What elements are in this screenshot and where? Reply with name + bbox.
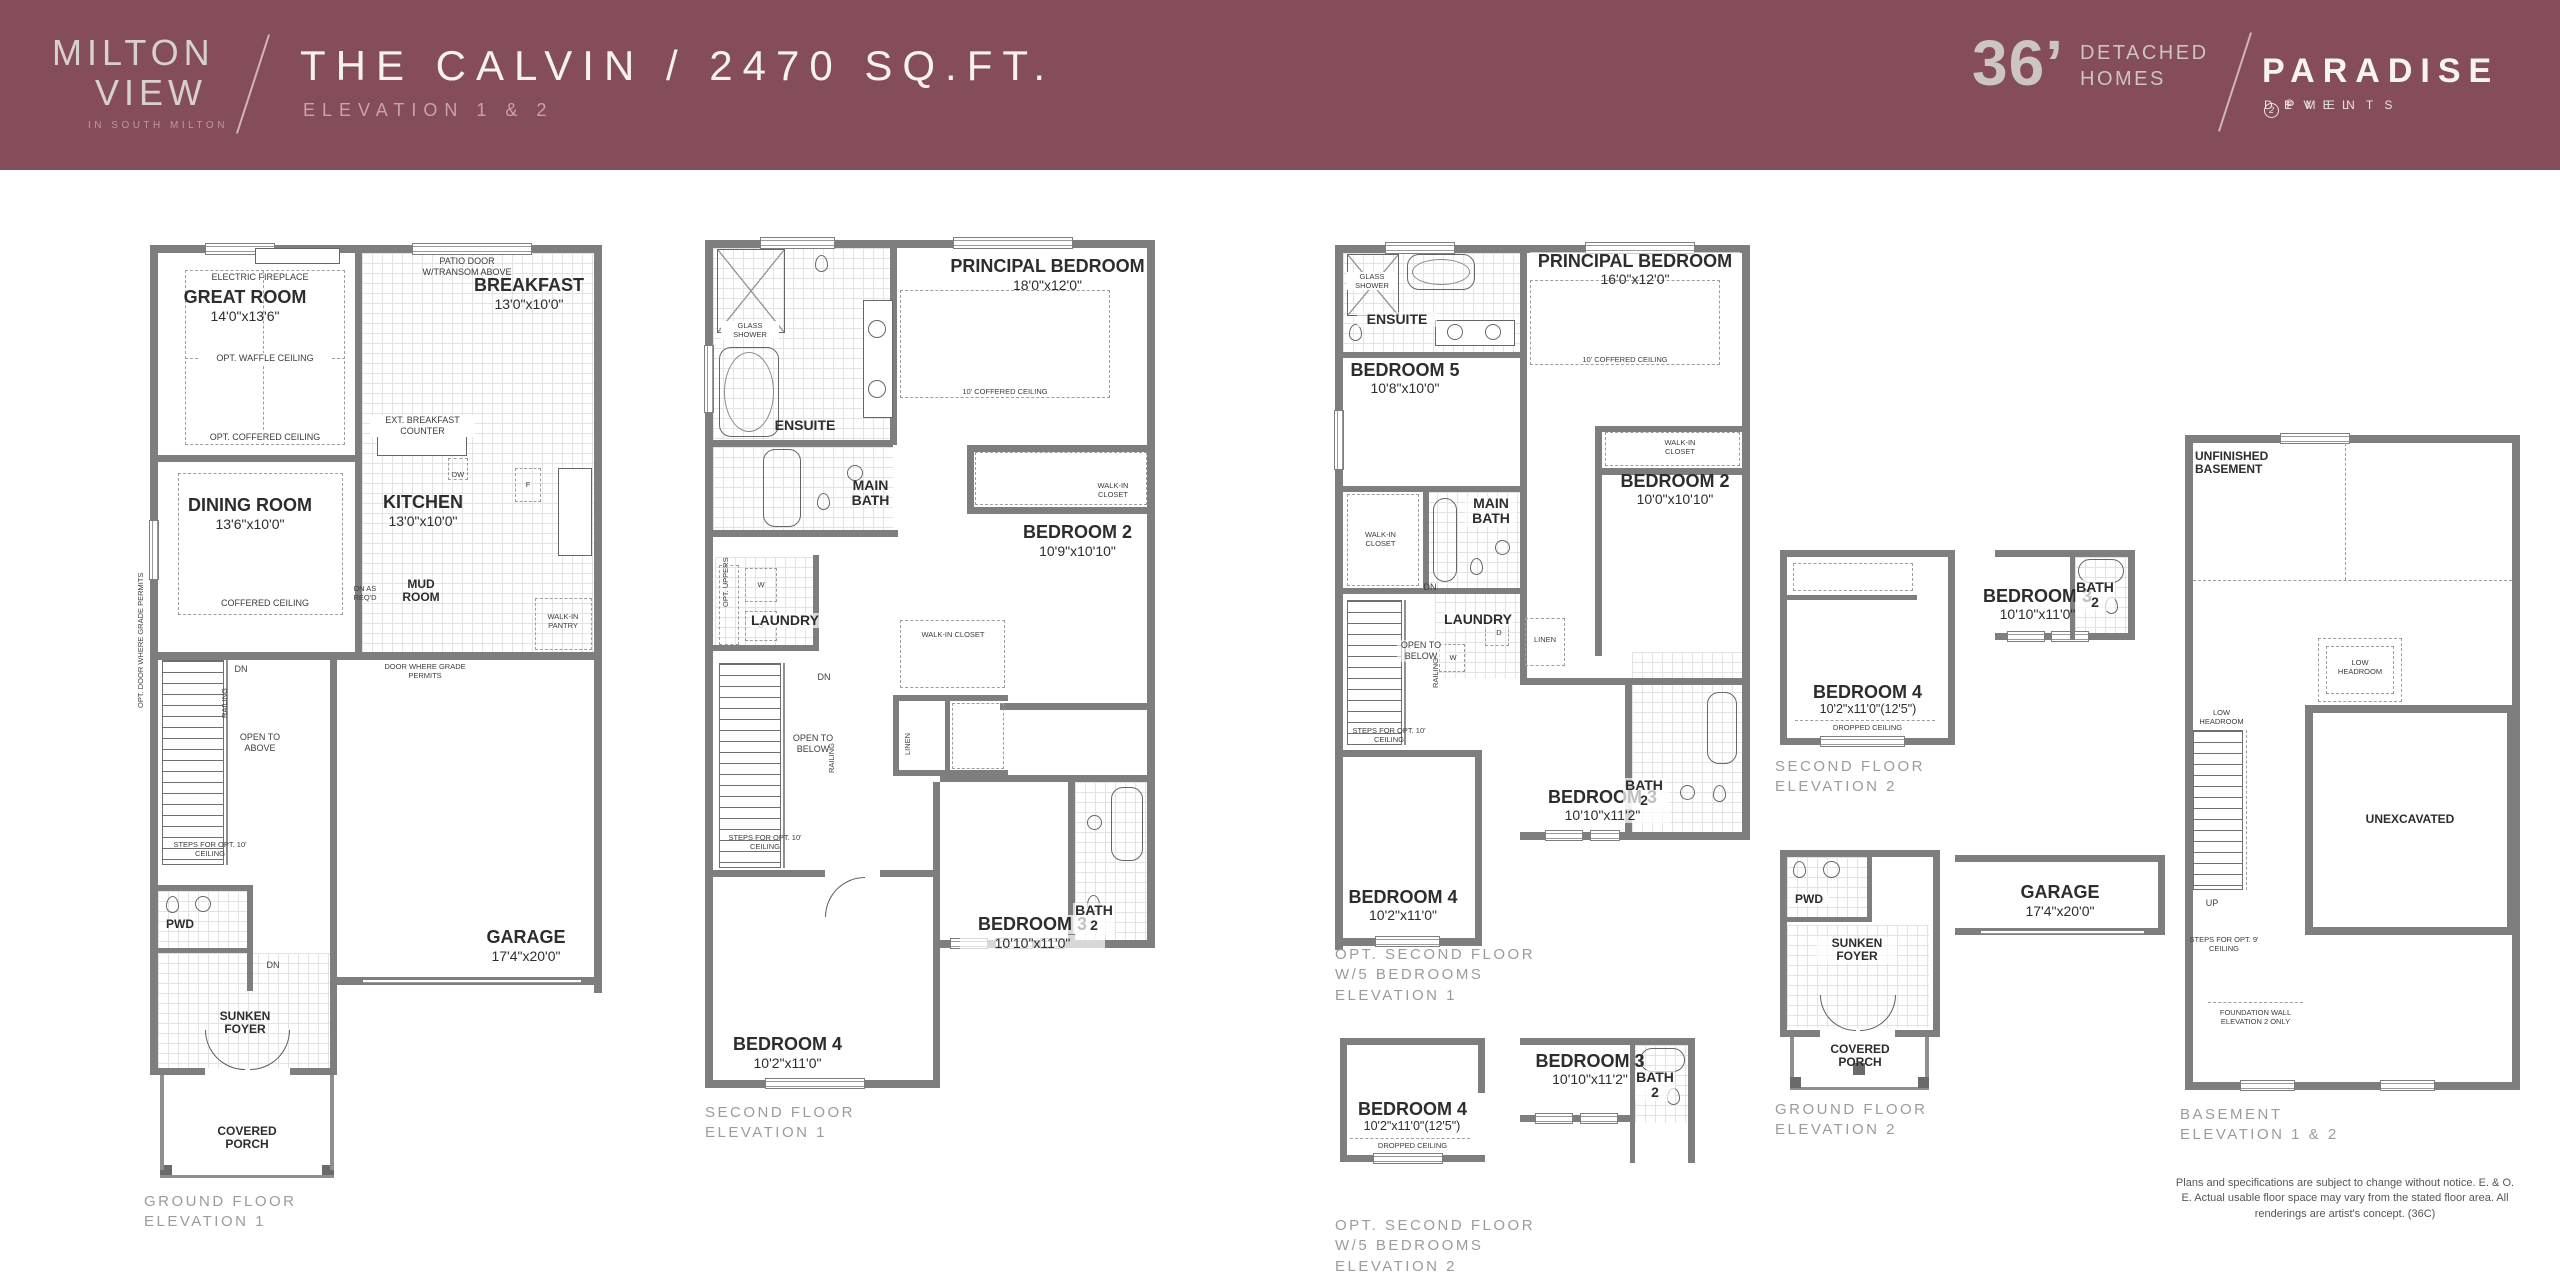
window-icon [2280, 433, 2350, 444]
room-label: BEDROOM 2 [1605, 472, 1745, 491]
note: OPT. UPPERS [721, 557, 730, 607]
stair-railing [1404, 600, 1406, 745]
front-door-opening [205, 1068, 290, 1075]
plan-caption: BASEMENT ELEVATION 1 & 2 [2180, 1105, 2339, 1146]
room-dims: 10'10"x11'2" [1535, 807, 1670, 823]
room-label: MUD ROOM [398, 578, 444, 605]
floor-plan-ground-floor-elevation-1: ELECTRIC FIREPLACE GREAT ROOM 14'0"x13'6… [150, 240, 615, 1250]
interior-wall [1478, 1038, 1485, 1093]
room-label: BATH 2 [1635, 1070, 1675, 1101]
caption-line: W/5 BEDROOMS [1335, 966, 1483, 983]
note: WALK-IN CLOSET [1087, 481, 1139, 499]
pwd-wall [1787, 917, 1872, 922]
porch-post [1790, 1077, 1801, 1088]
note: LOW HEADROOM [2194, 708, 2249, 726]
exterior-wall [2185, 435, 2193, 1090]
note: DN [1419, 582, 1441, 593]
beam-dash-line [2345, 443, 2346, 580]
builder-logo-2-icon: 2 [2264, 103, 2279, 118]
room-dims: 13'6"x10'0" [175, 516, 325, 532]
dropped-ceiling-line [1350, 1138, 1470, 1139]
sink-icon [868, 320, 886, 338]
window-icon [2380, 1080, 2435, 1091]
note: OPEN TO ABOVE [236, 732, 284, 754]
disclaimer-text: Plans and specifications are subject to … [2172, 1176, 2518, 1222]
room-dims: 10'10"x11'2" [1530, 1071, 1650, 1087]
window-icon [1334, 410, 1344, 470]
exterior-wall [1933, 850, 1940, 1037]
window-icon [760, 237, 835, 249]
plan-caption: SECOND FLOOR ELEVATION 1 [705, 1103, 855, 1144]
pwd-wall [158, 885, 253, 891]
window-icon [765, 1078, 865, 1089]
room-dims: 10'10"x11'0" [960, 935, 1105, 951]
room-label: COVERED PORCH [1815, 1043, 1905, 1070]
exterior-wall [2128, 550, 2135, 640]
plan-caption: OPT. SECOND FLOOR W/5 BEDROOMS ELEVATION… [1335, 1216, 1535, 1277]
closet-box [1793, 563, 1913, 591]
room-dims: 10'2"x11'0" [1343, 907, 1463, 923]
toilet-icon [1470, 558, 1483, 575]
tub-basin [1412, 259, 1470, 285]
plan-caption: GROUND FLOOR ELEVATION 1 [144, 1192, 297, 1233]
room-label: BREAKFAST [470, 276, 588, 295]
divider-slash-icon [236, 34, 270, 134]
note: STEPS FOR OPT. 9' CEILING [2188, 935, 2260, 953]
note: WALK-IN CLOSET [1353, 530, 1408, 548]
room-dims: 10'2"x11'0"(12'5") [1783, 702, 1953, 716]
bathtub-icon [763, 449, 801, 527]
stairs [2193, 730, 2243, 890]
note: DROPPED CEILING [1365, 1141, 1460, 1150]
window-icon [2007, 631, 2045, 642]
note: RAILING [220, 688, 229, 718]
divider-slash-icon [2218, 32, 2252, 132]
window-icon [1385, 242, 1455, 254]
room-dims: 16'0"x12'0" [1530, 271, 1740, 287]
note: F [518, 480, 538, 489]
note: FOUNDATION WALL ELEVATION 2 ONLY [2208, 1008, 2303, 1026]
room-label: SUNKEN FOYER [1817, 937, 1897, 964]
note: DN [262, 960, 284, 971]
bathtub-icon [1433, 498, 1457, 582]
home-type-line2: HOMES [2080, 68, 2166, 91]
community-logo-tagline: IN SOUTH MILTON [88, 120, 228, 131]
note: GLASS SHOWER [1347, 272, 1397, 290]
room-label: LAUNDRY [750, 613, 820, 628]
porch-wall [160, 1075, 164, 1170]
porch-post [1918, 1077, 1929, 1088]
note: DN AS REQ'D [348, 584, 382, 602]
window-icon [1590, 830, 1620, 841]
sink-icon [1087, 815, 1102, 830]
interior-wall [713, 530, 898, 537]
plan-subtitle: ELEVATION 1 & 2 [303, 100, 553, 121]
room-label: PRINCIPAL BEDROOM [945, 257, 1150, 276]
interior-wall [1520, 678, 1745, 685]
builder-dev-right: P M E N T S [2286, 98, 2396, 112]
note: ELECTRIC FIREPLACE [195, 272, 325, 283]
floor-plan-opt-second-floor-5br-elevation-2: BEDROOM 4 10'2"x11'0"(12'5") DROPPED CEI… [1335, 1030, 1700, 1280]
caption-line: W/5 BEDROOMS [1335, 1237, 1483, 1254]
note: DROPPED CEILING [1820, 723, 1915, 732]
builder-logo: PARADISE [2262, 52, 2499, 91]
note: WALK-IN CLOSET [908, 630, 998, 639]
interior-wall [1343, 486, 1523, 492]
interior-wall [1475, 750, 1482, 945]
caption-line: OPT. SECOND FLOOR [1335, 1217, 1535, 1234]
interior-wall [1520, 253, 1527, 358]
interior-wall [933, 782, 940, 1088]
room-label: UNFINISHED BASEMENT [2195, 450, 2290, 477]
room-label: COVERED PORCH [202, 1125, 292, 1152]
porch-edge [1790, 1087, 1929, 1090]
kitchen-counter [558, 468, 592, 556]
note: EXT. BREAKFAST COUNTER [370, 415, 475, 437]
note: W [755, 580, 767, 589]
porch-edge [160, 1175, 334, 1178]
room-label: BATH 2 [2075, 580, 2115, 611]
bathtub-icon [1707, 692, 1737, 764]
exterior-wall [1780, 850, 1940, 857]
toilet-icon [815, 255, 828, 272]
caption-line: SECOND FLOOR [1775, 758, 1925, 775]
closet-wall [1787, 595, 1917, 600]
room-dims: 17'4"x20'0" [462, 948, 590, 964]
caption-line: ELEVATION 1 [705, 1124, 827, 1141]
plan-caption: SECOND FLOOR ELEVATION 2 [1775, 757, 1925, 798]
interior-wall [158, 652, 602, 660]
interior-wall [940, 775, 1155, 782]
interior-wall [158, 455, 362, 462]
window-icon [2240, 1080, 2295, 1091]
porch-wall [330, 1075, 334, 1170]
fireplace-icon [255, 248, 340, 264]
note: DN [813, 672, 835, 683]
caption-line: ELEVATION 1 & 2 [2180, 1126, 2339, 1143]
note: RAILING [1431, 658, 1440, 688]
room-label: PRINCIPAL BEDROOM [1530, 252, 1740, 271]
note: LINEN [1528, 635, 1562, 644]
garage-door-icon [362, 979, 582, 984]
window-icon [149, 520, 159, 580]
interior-wall [1000, 703, 1155, 710]
stairs [1347, 600, 1402, 745]
bathtub-icon [1407, 254, 1475, 290]
note: D [1493, 628, 1505, 637]
room-dims: 13'0"x10'0" [364, 513, 482, 529]
unexcavated-area: UNEXCAVATED [2305, 705, 2515, 935]
note: STEPS FOR OPT. 10' CEILING [719, 833, 811, 851]
interior-wall [893, 695, 899, 776]
bathtub-icon [1111, 787, 1143, 861]
note: GLASS SHOWER [721, 321, 779, 339]
sink-icon [195, 896, 211, 912]
caption-line: GROUND FLOOR [1775, 1101, 1928, 1118]
note: WALK-IN PANTRY [540, 612, 586, 630]
exterior-wall [1780, 850, 1787, 1037]
room-dims: 18'0"x12'0" [945, 277, 1150, 293]
room-dims: 10'2"x11'0" [720, 1055, 855, 1071]
sink-icon [868, 380, 886, 398]
note: UP [2200, 898, 2224, 909]
room-dims: 10'9"x10'10" [1005, 543, 1150, 559]
caption-line: BASEMENT [2180, 1106, 2283, 1123]
caption-line: OPT. SECOND FLOOR [1335, 946, 1535, 963]
header-band: MILTON VIEW IN SOUTH MILTON THE CALVIN /… [0, 0, 2560, 170]
door-arc-icon [825, 877, 865, 917]
room-label: BEDROOM 3 [1530, 1052, 1650, 1071]
room-label: BEDROOM 5 [1345, 361, 1465, 380]
room-label: GREAT ROOM [170, 288, 320, 307]
door-opening [825, 870, 880, 877]
foundation-dash-line [2208, 1002, 2303, 1003]
interior-wall [945, 695, 950, 776]
note: COFFERED CEILING [205, 598, 325, 609]
brochure-page: MILTON VIEW IN SOUTH MILTON THE CALVIN /… [0, 0, 2560, 1280]
pwd-wall [1867, 857, 1872, 919]
room-label: BEDROOM 4 [1345, 1100, 1480, 1119]
room-dims: 10'0"x10'10" [1605, 491, 1745, 507]
exterior-wall [1995, 550, 2135, 557]
caption-line: SECOND FLOOR [705, 1104, 855, 1121]
floor-plan-second-floor-elevation-1: GLASS SHOWER ENSUITE PRINCIPAL BEDROOM 1… [705, 235, 1165, 1155]
caption-line: ELEVATION 1 [1335, 987, 1457, 1004]
sink-icon [1680, 785, 1695, 800]
floor-plan-opt-second-floor-5br-elevation-1: GLASS SHOWER ENSUITE PRINCIPAL BEDROOM 1… [1335, 240, 1760, 1030]
coffered-ceiling-box [1530, 280, 1720, 365]
note: DW [449, 470, 467, 479]
room-dims: 17'4"x20'0" [1990, 903, 2130, 919]
closet-box [952, 703, 1004, 769]
room-label: BATH 2 [1623, 778, 1665, 809]
exterior-wall [1335, 245, 1343, 950]
floor-plan-second-floor-elevation-2: BEDROOM 4 10'2"x11'0"(12'5") DROPPED CEI… [1775, 545, 2140, 805]
toilet-icon [166, 896, 179, 913]
garage-door-icon [1980, 930, 2145, 935]
caption-line: ELEVATION 1 [144, 1213, 266, 1230]
registered-icon: ® [2286, 98, 2296, 107]
note: OPT. WAFFLE CEILING [200, 353, 330, 364]
exterior-wall [1340, 1038, 1485, 1045]
interior-wall [967, 445, 974, 514]
interior-wall [1343, 352, 1523, 358]
caption-line: ELEVATION 2 [1335, 1258, 1457, 1275]
note: W [1447, 653, 1459, 662]
exterior-wall [1688, 1038, 1695, 1163]
interior-wall [1423, 492, 1429, 592]
pwd-wall [247, 885, 253, 991]
room-label: UNEXCAVATED [2366, 813, 2455, 826]
exterior-wall [2185, 1082, 2520, 1090]
room-label: DINING ROOM [175, 496, 325, 515]
room-label: PWD [160, 918, 200, 931]
note: OPT. COFFERED CEILING [200, 432, 330, 443]
builder-logo-sub: D E V E L 2 P M E N T S® [2264, 98, 2296, 118]
room-dims: 10'8"x10'0" [1345, 380, 1465, 396]
interior-wall [967, 507, 1155, 514]
window-icon [953, 237, 1073, 249]
room-label: SUNKEN FOYER [205, 1010, 285, 1037]
exterior-wall [2185, 435, 2520, 443]
room-dims: 14'0"x13'6" [170, 308, 320, 324]
room-label: MAIN BATH [1465, 496, 1517, 527]
pwd-wall [158, 948, 253, 953]
interior-wall [1595, 426, 1602, 656]
interior-wall [1343, 750, 1478, 757]
room-label: BEDROOM 4 [1790, 683, 1945, 702]
interior-wall [893, 695, 1008, 701]
room-label: BEDROOM 4 [1343, 888, 1463, 907]
toilet-icon [817, 493, 830, 510]
garage-wall [2158, 855, 2165, 935]
exterior-wall [1520, 1038, 1695, 1045]
room-label: BEDROOM 4 [720, 1035, 855, 1054]
exterior-wall [594, 245, 602, 993]
garage-wall [1955, 855, 2165, 862]
toilet-icon [1793, 861, 1806, 878]
exterior-wall [150, 245, 158, 1075]
window-icon [704, 345, 714, 413]
room-label: ENSUITE [1357, 312, 1437, 327]
note: STEPS FOR OPT. 10' CEILING [1345, 726, 1433, 744]
exterior-wall [1780, 550, 1955, 557]
sink-icon [1495, 540, 1510, 555]
room-label: MAIN BATH [843, 478, 898, 509]
interior-wall [713, 440, 893, 447]
window-icon [1820, 736, 1905, 747]
vanity-counter [863, 300, 893, 418]
note: DOOR WHERE GRADE PERMITS [380, 662, 470, 680]
room-dims: 13'0"x10'0" [470, 296, 588, 312]
note: LINEN [903, 733, 912, 755]
window-icon [1580, 1113, 1618, 1124]
room-label: BATH 2 [1073, 903, 1115, 934]
sink-icon [1447, 324, 1463, 340]
note: 10' COFFERED CEILING [935, 387, 1075, 396]
caption-line: GROUND FLOOR [144, 1193, 297, 1210]
sink-icon [1823, 861, 1840, 878]
note: WALK-IN CLOSET [1655, 438, 1705, 456]
room-label: GARAGE [1990, 883, 2130, 902]
stairs [162, 660, 224, 865]
note: 10' COFFERED CEILING [1560, 355, 1690, 364]
plan-caption: GROUND FLOOR ELEVATION 2 [1775, 1100, 1928, 1141]
community-logo-line1: MILTON [52, 32, 215, 74]
room-label: PWD [1789, 893, 1829, 906]
front-door-opening [1820, 1030, 1895, 1037]
lot-size: 36’ [1972, 26, 2064, 100]
note: STEPS FOR OPT. 10' CEILING [164, 840, 256, 858]
exterior-wall [1147, 240, 1155, 948]
plan-caption: OPT. SECOND FLOOR W/5 BEDROOMS ELEVATION… [1335, 945, 1535, 1006]
sink-icon [1485, 324, 1501, 340]
floor-plan-basement-elevation-1-2: UNEXCAVATED UNFINISHED BASEMENT LOW HEAD… [2180, 430, 2525, 1160]
caption-line: ELEVATION 2 [1775, 778, 1897, 795]
window-icon [1535, 1113, 1573, 1124]
stair-dash-line [2246, 730, 2247, 890]
note: LOW HEADROOM [2332, 658, 2388, 676]
beam-dash-line [2193, 580, 2512, 581]
note: RAILING [827, 743, 836, 773]
patio-door-icon [412, 243, 532, 255]
room-label: KITCHEN [364, 493, 482, 512]
exterior-wall [1742, 245, 1750, 840]
interior-wall [330, 660, 337, 1075]
caption-line: ELEVATION 2 [1775, 1121, 1897, 1138]
room-label: BEDROOM 2 [1005, 523, 1150, 542]
interior-wall [967, 445, 1155, 452]
room-label: ENSUITE [765, 418, 845, 433]
room-label: LAUNDRY [1443, 612, 1513, 627]
community-logo-line2: VIEW [95, 72, 207, 114]
interior-wall [713, 645, 819, 651]
toilet-icon [1713, 785, 1726, 802]
dropped-ceiling-line [1795, 720, 1935, 721]
coffered-ceiling-box [900, 290, 1110, 398]
interior-wall [813, 555, 819, 651]
note: OPT. DOOR WHERE GRADE PERMITS [136, 628, 145, 708]
floor-plan-ground-floor-elevation-2: PWD SUNKEN FOYER GARAGE 17'4"x20'0" COVE… [1775, 845, 2170, 1150]
plan-title: THE CALVIN / 2470 SQ.FT. [300, 42, 1055, 90]
window-icon [1373, 1153, 1443, 1164]
home-type-line1: DETACHED [2080, 42, 2209, 65]
window-icon [1545, 830, 1583, 841]
room-label: GARAGE [462, 928, 590, 947]
note: DN [230, 664, 252, 675]
room-dims: 10'2"x11'0"(12'5") [1337, 1119, 1487, 1133]
